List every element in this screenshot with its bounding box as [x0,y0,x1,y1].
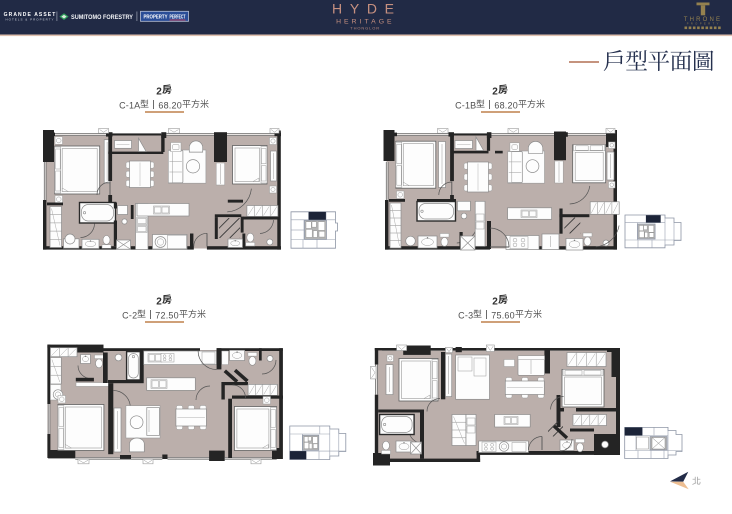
svg-text:HOTELS & PROPERTY: HOTELS & PROPERTY [5,17,54,21]
svg-text:SUMITOMO FORESTRY: SUMITOMO FORESTRY [71,14,133,21]
svg-text:PROPERTY: PROPERTY [144,15,168,21]
svg-text:P R O P E R T Y: P R O P E R T Y [687,22,720,26]
svg-text:THONGLOR: THONGLOR [350,26,381,31]
svg-text:HYDE: HYDE [332,1,400,17]
